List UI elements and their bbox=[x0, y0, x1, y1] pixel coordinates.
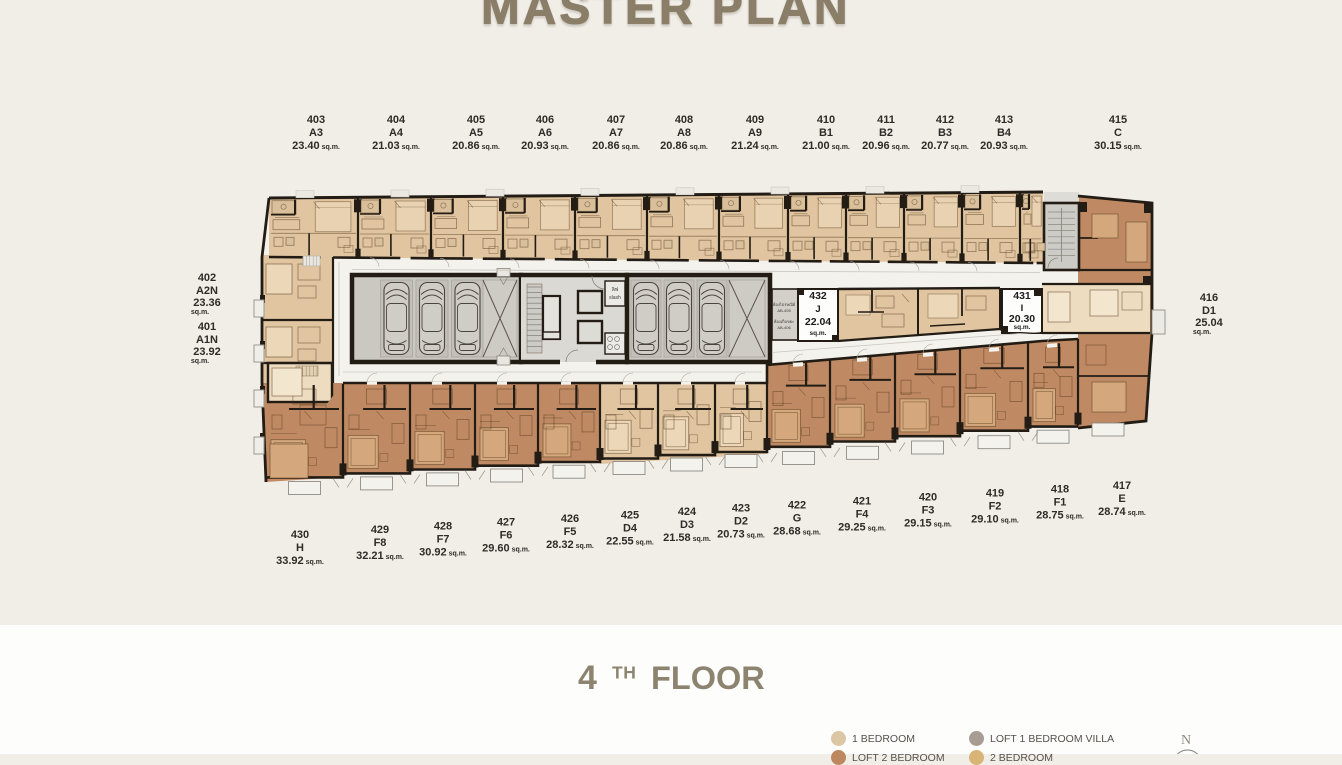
svg-text:AB-406: AB-406 bbox=[777, 325, 791, 330]
svg-text:A6: A6 bbox=[538, 127, 552, 139]
svg-text:D1: D1 bbox=[1202, 305, 1216, 317]
svg-text:FLOOR: FLOOR bbox=[651, 660, 765, 696]
svg-text:A8: A8 bbox=[677, 127, 691, 139]
svg-text:20.93 sq.m.: 20.93 sq.m. bbox=[521, 140, 569, 152]
svg-text:G: G bbox=[793, 512, 802, 524]
svg-text:20.86 sq.m.: 20.86 sq.m. bbox=[592, 140, 640, 152]
svg-text:TH: TH bbox=[612, 663, 636, 683]
svg-text:A4: A4 bbox=[389, 127, 404, 139]
svg-text:403: 403 bbox=[307, 114, 325, 126]
svg-text:23.92: 23.92 bbox=[193, 346, 221, 358]
svg-text:429: 429 bbox=[371, 524, 389, 536]
svg-text:407: 407 bbox=[607, 114, 625, 126]
svg-text:A7: A7 bbox=[609, 127, 623, 139]
svg-text:D3: D3 bbox=[680, 519, 694, 531]
svg-text:ห้องเก็บขยะ: ห้องเก็บขยะ bbox=[774, 318, 795, 324]
svg-text:A3: A3 bbox=[309, 127, 323, 139]
svg-text:23.40 sq.m.: 23.40 sq.m. bbox=[292, 140, 340, 152]
svg-text:427: 427 bbox=[497, 517, 515, 529]
svg-text:F2: F2 bbox=[989, 501, 1002, 513]
svg-text:402: 402 bbox=[198, 272, 216, 284]
svg-text:20.86 sq.m.: 20.86 sq.m. bbox=[660, 140, 708, 152]
svg-text:A2N: A2N bbox=[196, 285, 218, 297]
svg-text:425: 425 bbox=[621, 509, 639, 521]
svg-text:420: 420 bbox=[919, 492, 937, 504]
svg-text:20.73 sq.m.: 20.73 sq.m. bbox=[717, 529, 765, 541]
svg-text:B2: B2 bbox=[879, 127, 893, 139]
svg-text:F5: F5 bbox=[564, 526, 577, 538]
svg-text:A1N: A1N bbox=[196, 334, 218, 346]
svg-text:408: 408 bbox=[675, 114, 693, 126]
svg-text:426: 426 bbox=[561, 513, 579, 525]
svg-text:401: 401 bbox=[198, 321, 216, 333]
svg-text:E: E bbox=[1118, 493, 1125, 505]
svg-text:29.15 sq.m.: 29.15 sq.m. bbox=[904, 518, 952, 530]
svg-text:21.03 sq.m.: 21.03 sq.m. bbox=[372, 140, 420, 152]
svg-text:409: 409 bbox=[746, 114, 764, 126]
svg-text:B4: B4 bbox=[997, 127, 1012, 139]
svg-text:418: 418 bbox=[1051, 484, 1069, 496]
svg-text:412: 412 bbox=[936, 114, 954, 126]
svg-text:404: 404 bbox=[387, 114, 406, 126]
svg-text:sq.m.: sq.m. bbox=[1014, 324, 1031, 331]
svg-text:F8: F8 bbox=[374, 537, 387, 549]
svg-text:406: 406 bbox=[536, 114, 554, 126]
svg-text:28.32 sq.m.: 28.32 sq.m. bbox=[546, 539, 594, 551]
svg-text:29.10 sq.m.: 29.10 sq.m. bbox=[971, 514, 1019, 526]
svg-text:410: 410 bbox=[817, 114, 835, 126]
svg-text:F1: F1 bbox=[1054, 497, 1067, 509]
svg-text:30.92 sq.m.: 30.92 sq.m. bbox=[419, 546, 467, 558]
svg-text:A9: A9 bbox=[748, 127, 762, 139]
svg-text:21.00 sq.m.: 21.00 sq.m. bbox=[802, 140, 850, 152]
svg-text:sq.m.: sq.m. bbox=[810, 330, 827, 337]
svg-text:419: 419 bbox=[986, 488, 1004, 500]
svg-text:432: 432 bbox=[809, 290, 827, 302]
svg-text:428: 428 bbox=[434, 520, 452, 532]
svg-text:B3: B3 bbox=[938, 127, 952, 139]
svg-text:25.04: 25.04 bbox=[1195, 317, 1223, 329]
svg-text:415: 415 bbox=[1109, 114, 1127, 126]
svg-text:22.04: 22.04 bbox=[805, 316, 831, 328]
svg-text:21.24 sq.m.: 21.24 sq.m. bbox=[731, 140, 779, 152]
svg-text:20.96 sq.m.: 20.96 sq.m. bbox=[862, 140, 910, 152]
svg-text:411: 411 bbox=[877, 114, 895, 126]
svg-text:J: J bbox=[815, 304, 820, 315]
svg-text:H: H bbox=[296, 542, 304, 554]
svg-text:417: 417 bbox=[1113, 480, 1131, 492]
svg-text:424: 424 bbox=[678, 506, 697, 518]
svg-text:32.21 sq.m.: 32.21 sq.m. bbox=[356, 550, 404, 562]
svg-text:20.86 sq.m.: 20.86 sq.m. bbox=[452, 140, 500, 152]
svg-text:F7: F7 bbox=[437, 533, 450, 545]
svg-text:29.60 sq.m.: 29.60 sq.m. bbox=[482, 543, 530, 555]
svg-text:C: C bbox=[1114, 127, 1122, 139]
svg-text:sq.m.: sq.m. bbox=[1193, 329, 1211, 336]
svg-text:422: 422 bbox=[788, 499, 806, 511]
svg-text:430: 430 bbox=[291, 529, 309, 541]
svg-text:20.93 sq.m.: 20.93 sq.m. bbox=[980, 140, 1028, 152]
svg-text:22.55 sq.m.: 22.55 sq.m. bbox=[606, 535, 654, 547]
svg-text:A5: A5 bbox=[469, 127, 483, 139]
svg-text:421: 421 bbox=[853, 496, 871, 508]
svg-text:sq.m.: sq.m. bbox=[191, 309, 209, 316]
svg-text:413: 413 bbox=[995, 114, 1013, 126]
svg-text:33.92 sq.m.: 33.92 sq.m. bbox=[276, 555, 324, 567]
svg-text:23.36: 23.36 bbox=[193, 297, 221, 309]
svg-text:20.77 sq.m.: 20.77 sq.m. bbox=[921, 140, 969, 152]
svg-text:B1: B1 bbox=[819, 127, 833, 139]
svg-text:30.15 sq.m.: 30.15 sq.m. bbox=[1094, 140, 1142, 152]
svg-text:sq.m.: sq.m. bbox=[191, 358, 209, 365]
svg-text:431: 431 bbox=[1013, 290, 1031, 302]
svg-text:28.75 sq.m.: 28.75 sq.m. bbox=[1036, 510, 1084, 522]
svg-text:ห้องไปรษณีย์: ห้องไปรษณีย์ bbox=[773, 302, 795, 307]
svg-text:405: 405 bbox=[467, 114, 485, 126]
svg-text:D4: D4 bbox=[623, 522, 638, 534]
svg-text:F6: F6 bbox=[500, 530, 513, 542]
svg-text:29.25 sq.m.: 29.25 sq.m. bbox=[838, 522, 886, 534]
svg-text:D2: D2 bbox=[734, 516, 748, 528]
svg-text:F4: F4 bbox=[856, 509, 870, 521]
svg-text:slash: slash bbox=[609, 295, 621, 301]
svg-text:21.58 sq.m.: 21.58 sq.m. bbox=[663, 532, 711, 544]
svg-text:28.68 sq.m.: 28.68 sq.m. bbox=[773, 525, 821, 537]
svg-text:F3: F3 bbox=[922, 505, 935, 517]
svg-text:ลิฟ: ลิฟ bbox=[612, 286, 619, 293]
svg-text:28.74 sq.m.: 28.74 sq.m. bbox=[1098, 506, 1146, 518]
svg-text:416: 416 bbox=[1200, 292, 1218, 304]
svg-text:423: 423 bbox=[732, 503, 750, 515]
svg-text:AB-405: AB-405 bbox=[777, 308, 791, 313]
svg-text:4: 4 bbox=[578, 659, 597, 697]
